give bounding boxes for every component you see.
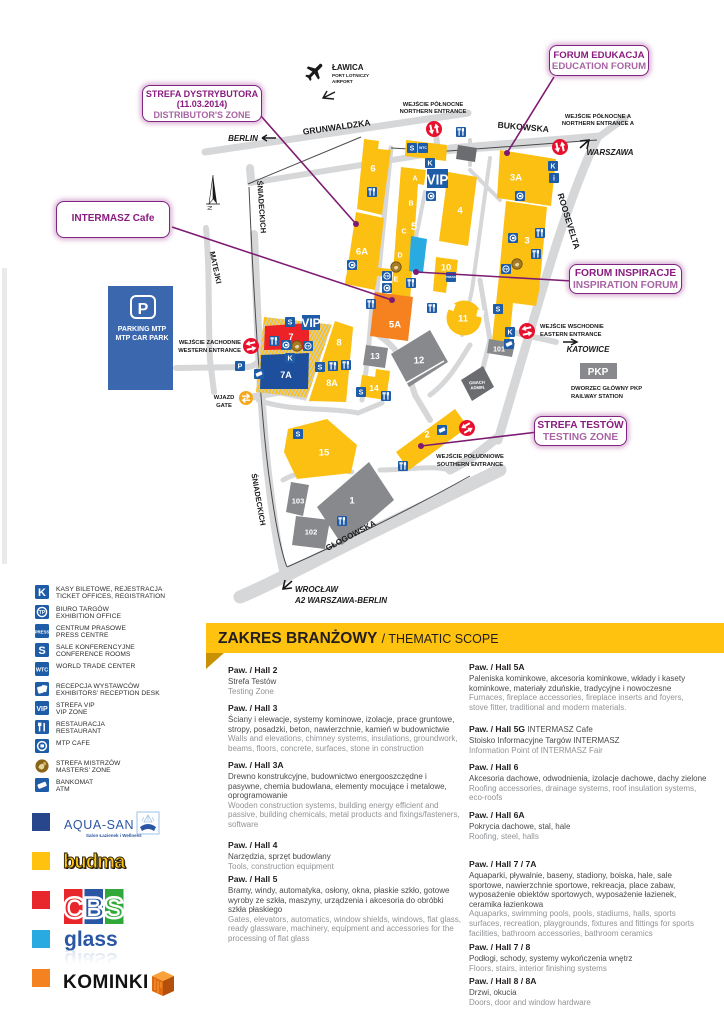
svg-text:4: 4 (457, 205, 463, 216)
svg-text:ADMIN.: ADMIN. (470, 385, 485, 391)
svg-text:7A: 7A (280, 370, 292, 380)
svg-text:TP: TP (39, 610, 46, 616)
svg-text:B: B (408, 201, 413, 208)
svg-text:TP: TP (306, 344, 311, 348)
svg-text:12: 12 (413, 355, 424, 367)
svg-text:P: P (238, 364, 243, 371)
svg-text:A: A (412, 176, 417, 183)
svg-text:RAILWAY STATION: RAILWAY STATION (571, 394, 623, 400)
svg-text:ŚNIADECKICH: ŚNIADECKICH (255, 180, 268, 233)
svg-text:K: K (38, 587, 46, 599)
svg-text:PRESS: PRESS (446, 275, 456, 279)
svg-text:D: D (397, 253, 402, 260)
svg-text:8: 8 (336, 337, 341, 348)
svg-text:13: 13 (370, 351, 380, 361)
svg-text:K: K (427, 161, 432, 168)
svg-text:B: B (83, 892, 105, 924)
svg-text:WEJŚCIE PÓŁNOCNE A: WEJŚCIE PÓŁNOCNE A (565, 112, 632, 120)
svg-text:TP: TP (504, 267, 509, 271)
svg-text:C: C (64, 892, 85, 924)
svg-text:S: S (359, 390, 364, 397)
svg-text:PRESS: PRESS (35, 630, 49, 635)
svg-text:TP: TP (385, 274, 390, 278)
svg-text:WEJŚCIE POŁUDNIOWE: WEJŚCIE POŁUDNIOWE (436, 453, 504, 460)
svg-text:ŚNIADECKICH: ŚNIADECKICH (249, 473, 267, 527)
svg-text:NORTHERN ENTRANCE A: NORTHERN ENTRANCE A (562, 121, 635, 127)
svg-text:10: 10 (441, 262, 452, 273)
svg-text:PKP: PKP (588, 367, 609, 378)
svg-text:6A: 6A (356, 246, 368, 257)
svg-text:NORTHERN ENTRANCE: NORTHERN ENTRANCE (400, 109, 467, 115)
svg-text:K: K (287, 356, 292, 363)
svg-text:S: S (288, 320, 293, 327)
svg-text:102: 102 (305, 528, 318, 537)
svg-text:8A: 8A (326, 378, 338, 388)
svg-text:E: E (394, 277, 399, 284)
svg-text:P: P (138, 301, 149, 318)
svg-text:WARSZAWA: WARSZAWA (586, 148, 633, 157)
svg-text:S: S (104, 892, 124, 924)
svg-text:K: K (507, 330, 512, 337)
svg-text:15: 15 (319, 447, 330, 458)
svg-text:WESTERN ENTRANCE: WESTERN ENTRANCE (178, 348, 241, 354)
svg-text:WTC: WTC (36, 668, 48, 674)
svg-text:DWORZEC GŁÓWNY PKP: DWORZEC GŁÓWNY PKP (571, 384, 642, 392)
svg-text:WEJŚCIE WSCHODNIE: WEJŚCIE WSCHODNIE (540, 323, 604, 330)
svg-text:C: C (401, 229, 406, 236)
svg-text:101: 101 (493, 347, 505, 354)
svg-text:K: K (550, 164, 555, 171)
svg-text:PARKING MTP: PARKING MTP (118, 326, 167, 333)
svg-text:WROCŁAW: WROCŁAW (295, 585, 340, 594)
svg-text:N: N (208, 206, 214, 210)
svg-text:i: i (553, 176, 555, 183)
svg-text:11: 11 (458, 313, 469, 324)
svg-text:WEJŚCIE ZACHODNIE: WEJŚCIE ZACHODNIE (179, 339, 241, 346)
svg-text:GATE: GATE (216, 403, 232, 409)
svg-text:5A: 5A (389, 319, 401, 330)
svg-text:ŁAWICA: ŁAWICA (332, 63, 364, 72)
svg-text:3: 3 (524, 235, 529, 246)
svg-text:WJAZD: WJAZD (214, 395, 235, 401)
svg-text:VIP: VIP (301, 316, 320, 330)
svg-text:S: S (410, 146, 415, 153)
svg-text:VIP: VIP (427, 172, 449, 189)
svg-text:WEJŚCIE PÓŁNOCNE: WEJŚCIE PÓŁNOCNE (403, 100, 464, 108)
svg-text:5: 5 (411, 221, 417, 233)
svg-text:S: S (296, 432, 301, 439)
svg-text:3A: 3A (510, 172, 522, 183)
svg-text:S: S (38, 645, 45, 657)
svg-text:S: S (496, 307, 501, 314)
svg-text:A2 WARSZAWA-BERLIN: A2 WARSZAWA-BERLIN (294, 596, 387, 605)
svg-text:14: 14 (369, 383, 379, 393)
svg-text:S: S (318, 365, 323, 372)
svg-text:MTP CAR PARK: MTP CAR PARK (115, 335, 168, 342)
svg-text:SOUTHERN ENTRANCE: SOUTHERN ENTRANCE (437, 462, 503, 468)
svg-text:6: 6 (370, 163, 375, 174)
svg-text:WTC: WTC (419, 146, 427, 150)
svg-text:AIRPORT: AIRPORT (332, 79, 353, 84)
svg-text:VIP: VIP (36, 706, 48, 713)
svg-text:1: 1 (349, 495, 355, 506)
svg-text:103: 103 (292, 497, 305, 506)
svg-text:BERLIN: BERLIN (228, 134, 258, 143)
svg-text:KATOWICE: KATOWICE (567, 345, 610, 354)
svg-text:EASTERN ENTRANCE: EASTERN ENTRANCE (540, 332, 602, 338)
svg-text:PORT LOTNICZY: PORT LOTNICZY (332, 73, 369, 78)
